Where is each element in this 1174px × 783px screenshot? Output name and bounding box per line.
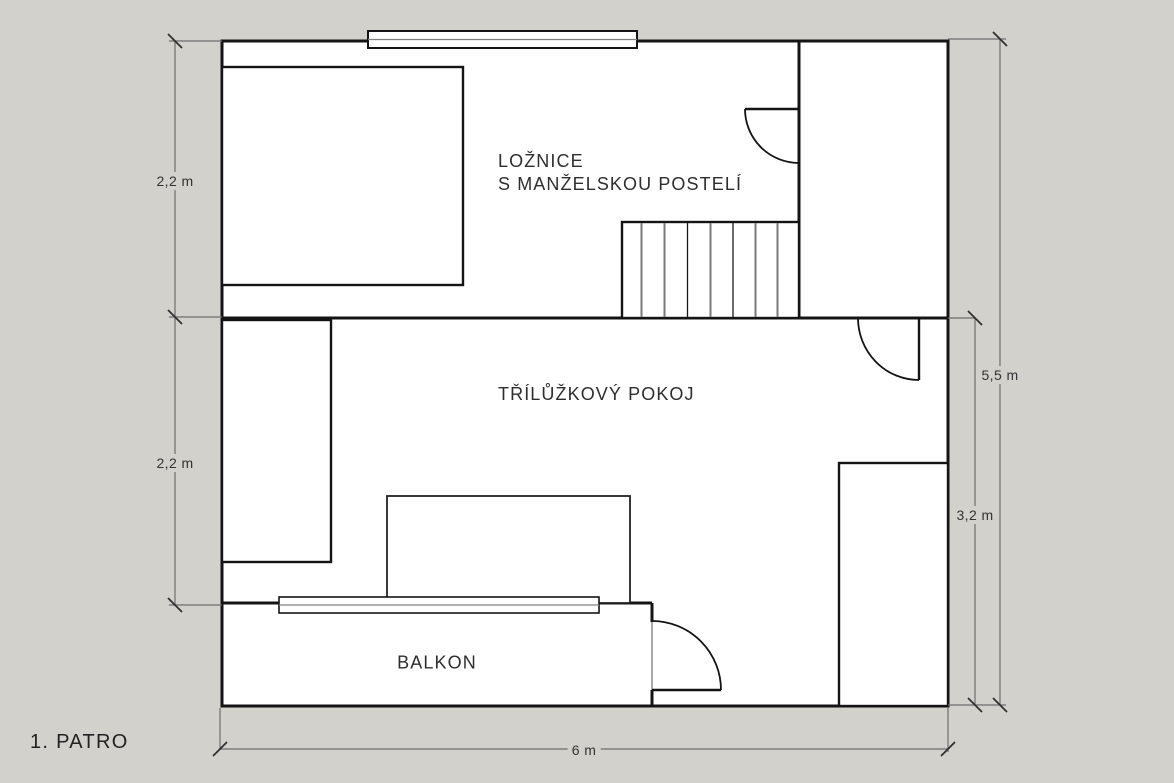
bed-triple-room	[387, 496, 630, 603]
balcony-label: BALKON	[397, 654, 477, 673]
stairs	[622, 222, 799, 318]
dimension-left	[168, 34, 222, 612]
dim-value-left-lower: 2,2 m	[152, 454, 197, 472]
triple-room-label: TŘÍLŮŽKOVÝ POKOJ	[498, 385, 695, 404]
floor-title: 1. PATRO	[30, 731, 129, 754]
window-top	[368, 31, 637, 48]
dim-value-right-total: 5,5 m	[977, 366, 1022, 384]
wardrobe-right	[839, 463, 948, 706]
dim-value-right-lower: 3,2 m	[952, 506, 997, 524]
floorplan-canvas: LOŽNICE S MANŽELSKOU POSTELÍ TŘÍLŮŽKOVÝ …	[0, 0, 1174, 783]
bedroom-label-line2: S MANŽELSKOU POSTELÍ	[498, 173, 742, 196]
dim-value-left-upper: 2,2 m	[152, 172, 197, 190]
double-bed	[222, 67, 463, 285]
window-balcony	[279, 597, 599, 613]
dim-value-bottom-total: 6 m	[568, 741, 601, 759]
wardrobe-left	[222, 320, 331, 562]
bedroom-label-line1: LOŽNICE	[498, 150, 742, 173]
bedroom-label: LOŽNICE S MANŽELSKOU POSTELÍ	[498, 150, 742, 196]
